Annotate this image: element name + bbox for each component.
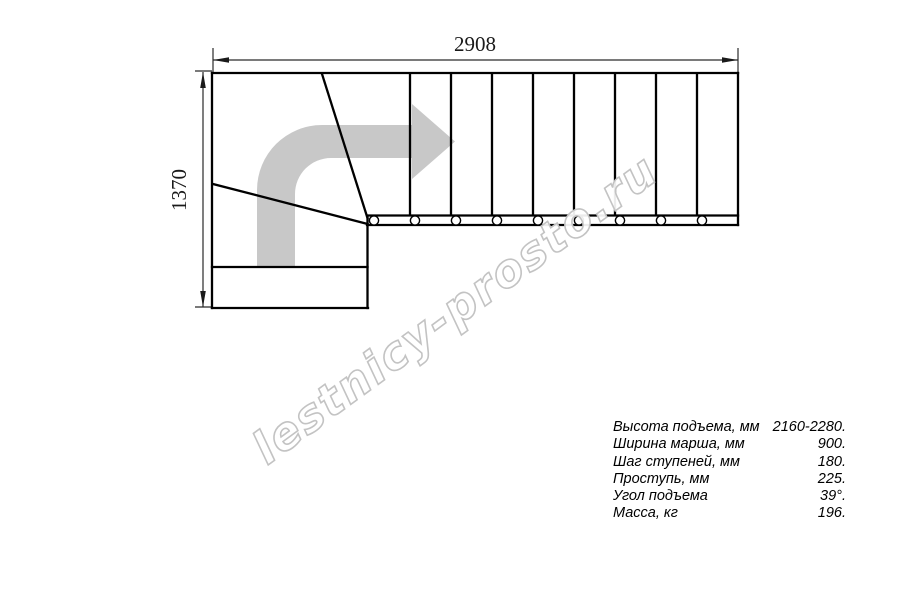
spec-row-angle: Угол подъема 39°. — [613, 488, 846, 505]
dimension-top-arrow-right — [722, 57, 738, 63]
spec-value: 196. — [818, 505, 846, 522]
tread-bolt-circle — [369, 216, 378, 225]
spec-value: 2160-2280. — [773, 419, 846, 436]
tread-bolt-circle — [492, 216, 501, 225]
spec-value: 900. — [818, 436, 846, 453]
spec-label: Высота подъема, мм — [613, 419, 760, 436]
tread-bolt-circle — [656, 216, 665, 225]
spec-label: Ширина марша, мм — [613, 436, 745, 453]
spec-label: Угол подъема — [613, 488, 708, 505]
tread-bolt-circle — [451, 216, 460, 225]
spec-label: Масса, кг — [613, 505, 678, 522]
direction-arrow — [257, 104, 455, 267]
dimension-top-label: 2908 — [454, 32, 496, 56]
dimension-left-arrow-top — [200, 72, 206, 88]
spec-list: Высота подъема, мм 2160-2280. Ширина мар… — [613, 419, 846, 523]
spec-value: 180. — [818, 454, 846, 471]
dimension-top-arrow-left — [213, 57, 229, 63]
tread-bolt-circle — [697, 216, 706, 225]
dimension-left-arrow-bottom — [200, 291, 206, 307]
spec-row-step-rise: Шаг ступеней, мм 180. — [613, 454, 846, 471]
spec-value: 225. — [818, 471, 846, 488]
spec-row-tread-depth: Проступь, мм 225. — [613, 471, 846, 488]
dimension-left — [195, 71, 212, 307]
spec-label: Шаг ступеней, мм — [613, 454, 740, 471]
tread-bolt-circle — [410, 216, 419, 225]
spec-row-height: Высота подъема, мм 2160-2280. — [613, 419, 846, 436]
dimension-left-label: 1370 — [167, 169, 191, 211]
spec-label: Проступь, мм — [613, 471, 709, 488]
spec-value: 39°. — [820, 488, 846, 505]
spec-row-mass: Масса, кг 196. — [613, 505, 846, 522]
stair-plan-canvas: 2908 1370 lestnicy-prosto.r — [0, 0, 900, 600]
spec-row-flight-width: Ширина марша, мм 900. — [613, 436, 846, 453]
